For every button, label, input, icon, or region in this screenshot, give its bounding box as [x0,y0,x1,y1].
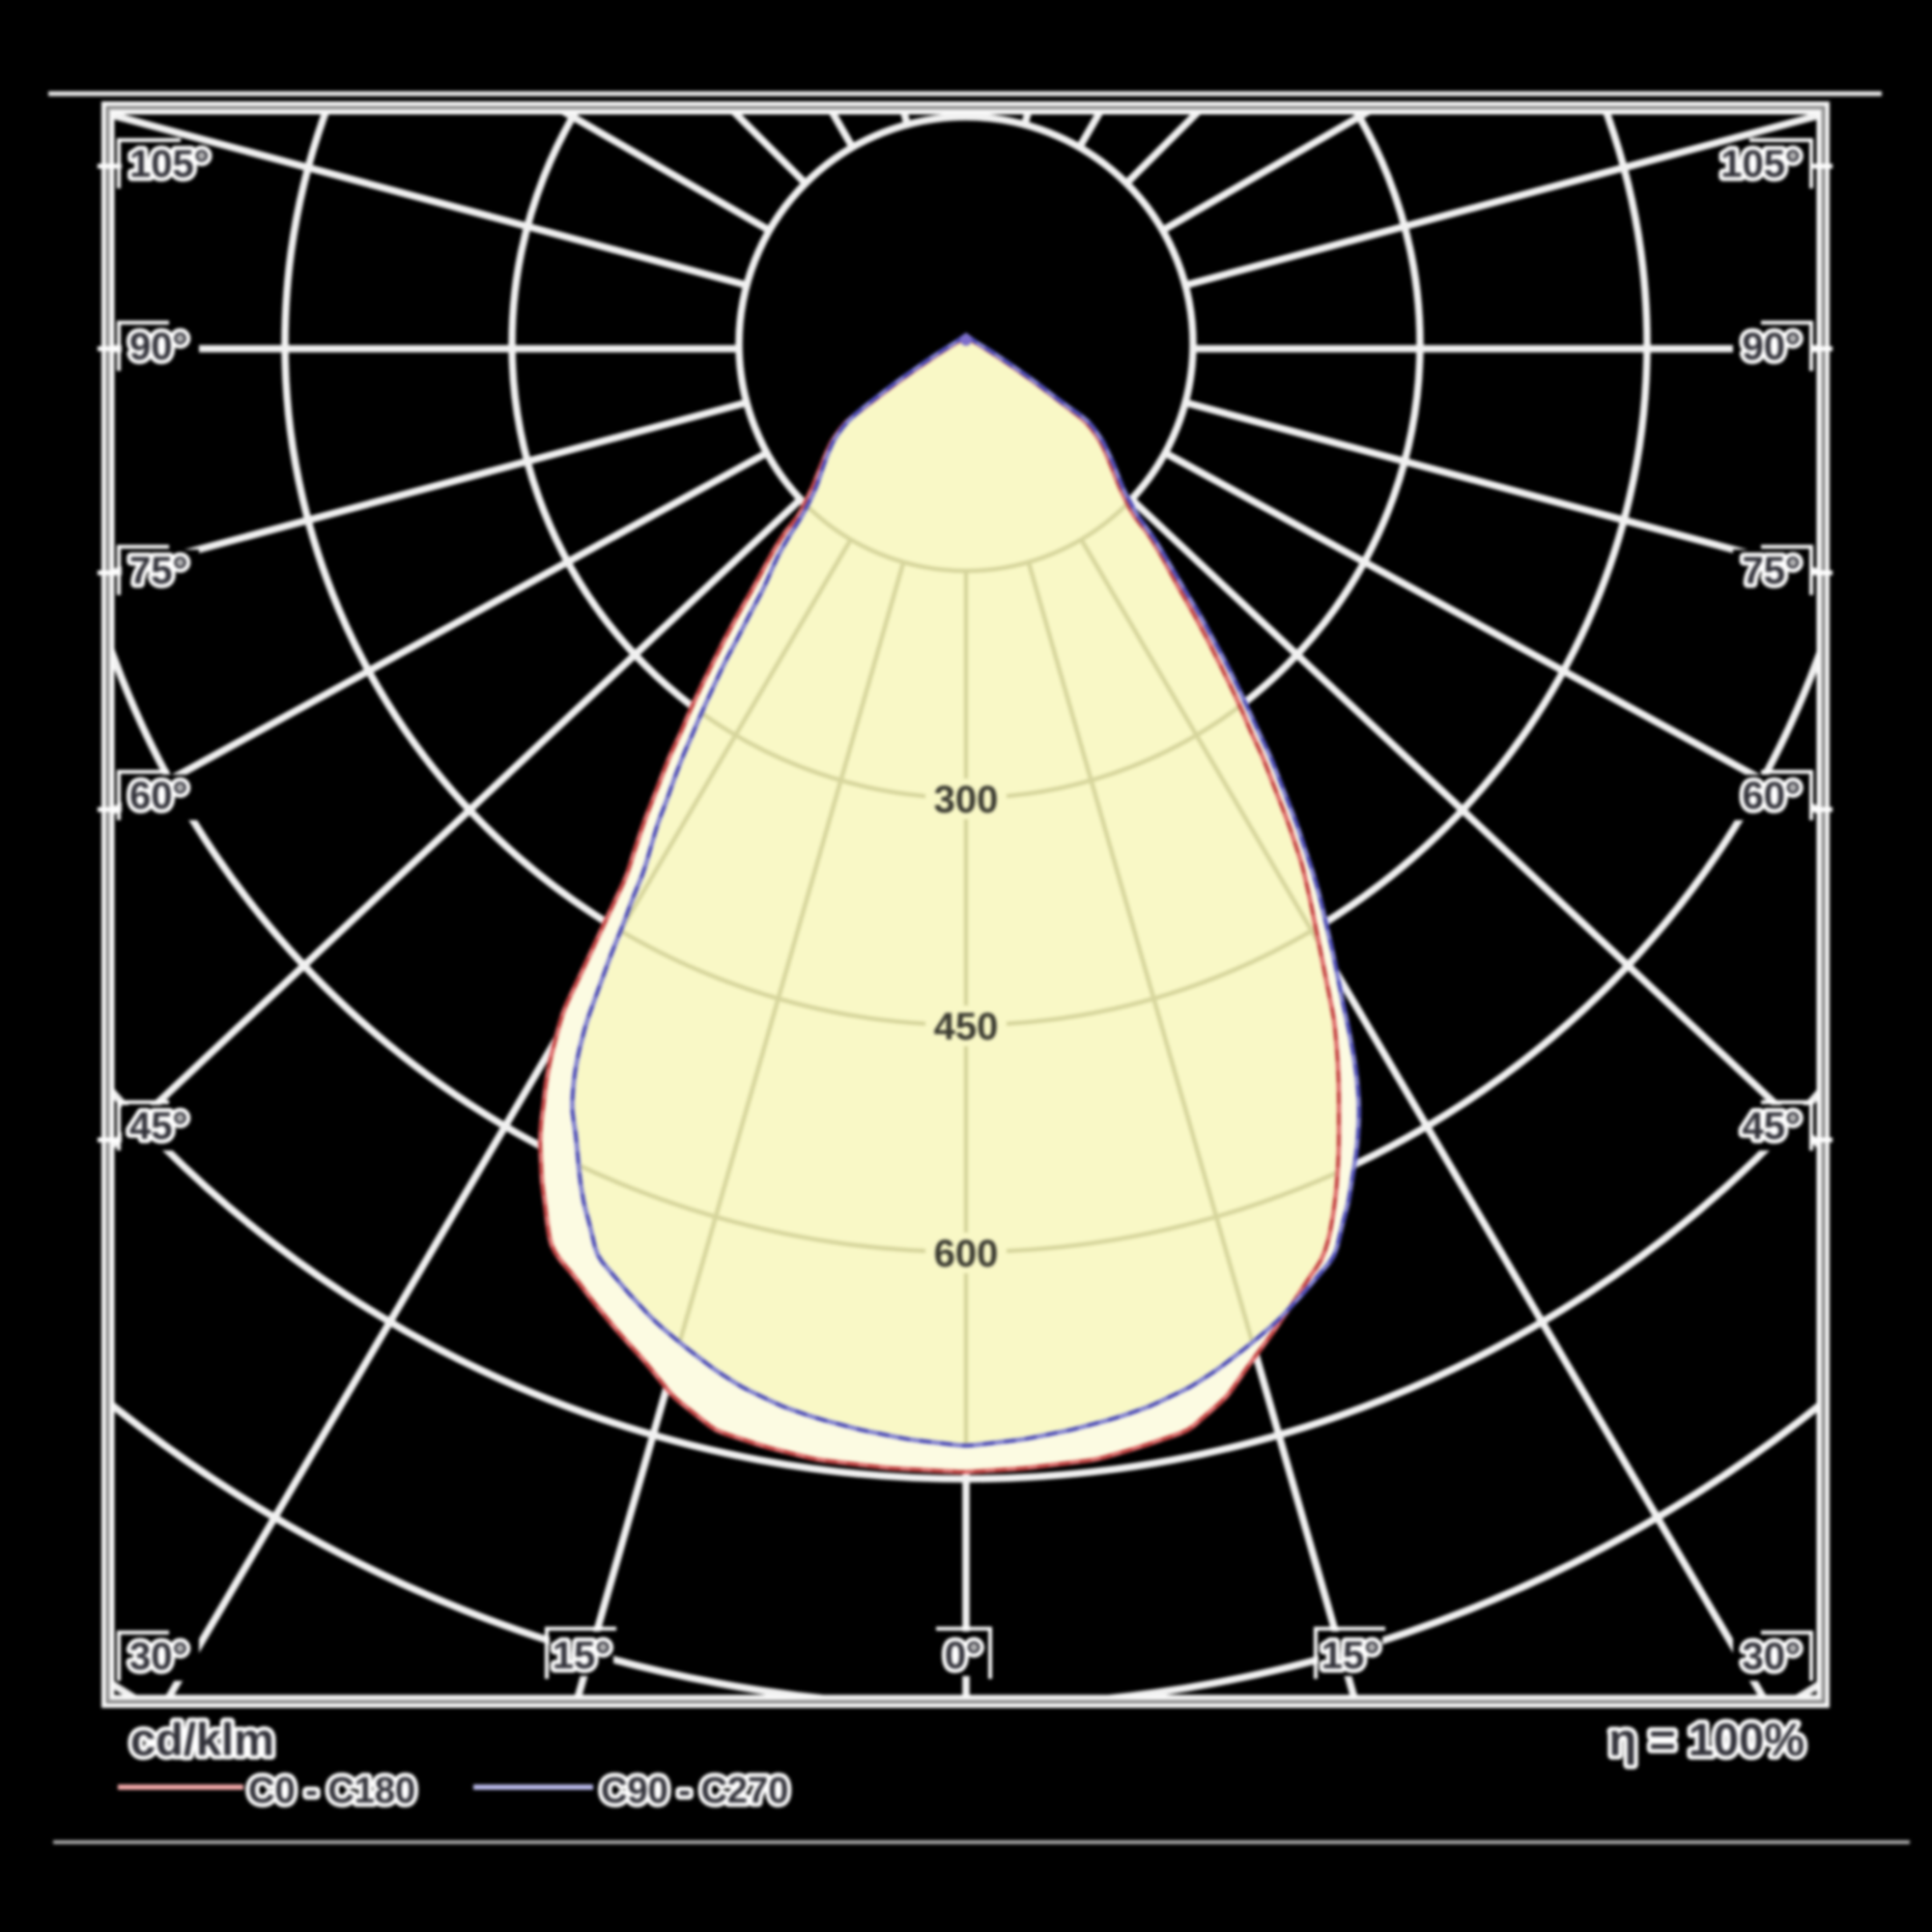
svg-text:105°: 105° [1720,143,1801,185]
svg-text:600: 600 [934,1233,999,1275]
svg-text:60°: 60° [1743,775,1802,817]
svg-text:75°: 75° [1743,550,1802,592]
svg-text:15°: 15° [553,1634,611,1677]
svg-text:0°: 0° [945,1634,981,1677]
svg-text:η = 100%: η = 100% [1609,1714,1804,1765]
svg-text:cd/klm: cd/klm [130,1714,274,1765]
svg-text:90°: 90° [1743,326,1802,368]
svg-text:450: 450 [934,1006,999,1048]
svg-text:90°: 90° [129,326,188,368]
svg-text:15°: 15° [1321,1634,1380,1677]
svg-text:105°: 105° [129,143,210,185]
svg-text:300: 300 [934,779,999,821]
svg-text:60°: 60° [129,775,188,817]
svg-text:C0 - C180: C0 - C180 [248,1771,415,1811]
svg-text:75°: 75° [129,550,188,592]
svg-text:C90 - C270: C90 - C270 [601,1771,788,1811]
svg-text:45°: 45° [129,1105,188,1148]
svg-text:45°: 45° [1743,1105,1802,1148]
svg-text:30°: 30° [129,1635,188,1678]
svg-text:30°: 30° [1743,1635,1802,1678]
